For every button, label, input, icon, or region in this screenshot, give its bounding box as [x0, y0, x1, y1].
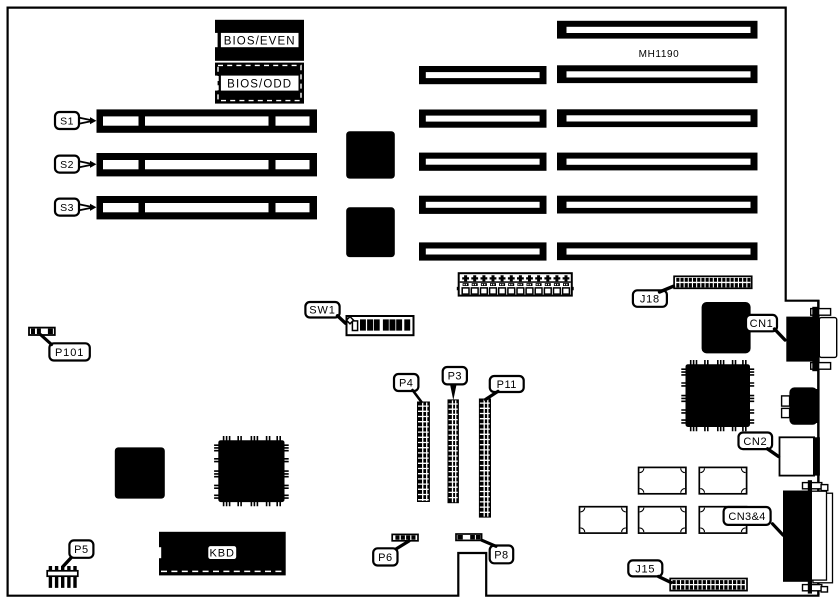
svg-text:BIOS/EVEN: BIOS/EVEN	[224, 35, 296, 47]
svg-text:MH1190: MH1190	[639, 49, 680, 60]
svg-text:P101: P101	[55, 347, 84, 359]
svg-text:S1: S1	[60, 115, 74, 127]
svg-text:CN2: CN2	[743, 436, 767, 448]
svg-text:S2: S2	[60, 159, 74, 171]
svg-text:CN1: CN1	[750, 318, 774, 330]
svg-text:J18: J18	[640, 294, 660, 306]
svg-text:P4: P4	[399, 377, 413, 389]
svg-text:BIOS/ODD: BIOS/ODD	[227, 78, 292, 90]
svg-text:CN3&4: CN3&4	[728, 511, 765, 523]
svg-text:S3: S3	[60, 202, 74, 214]
svg-text:P11: P11	[497, 379, 517, 391]
svg-text:SW1: SW1	[309, 305, 336, 317]
svg-text:KBD: KBD	[210, 548, 235, 560]
svg-text:P8: P8	[494, 549, 508, 561]
svg-text:J15: J15	[635, 563, 655, 575]
svg-text:P3: P3	[448, 371, 462, 383]
svg-text:P5: P5	[74, 544, 88, 556]
svg-text:P6: P6	[378, 552, 392, 564]
